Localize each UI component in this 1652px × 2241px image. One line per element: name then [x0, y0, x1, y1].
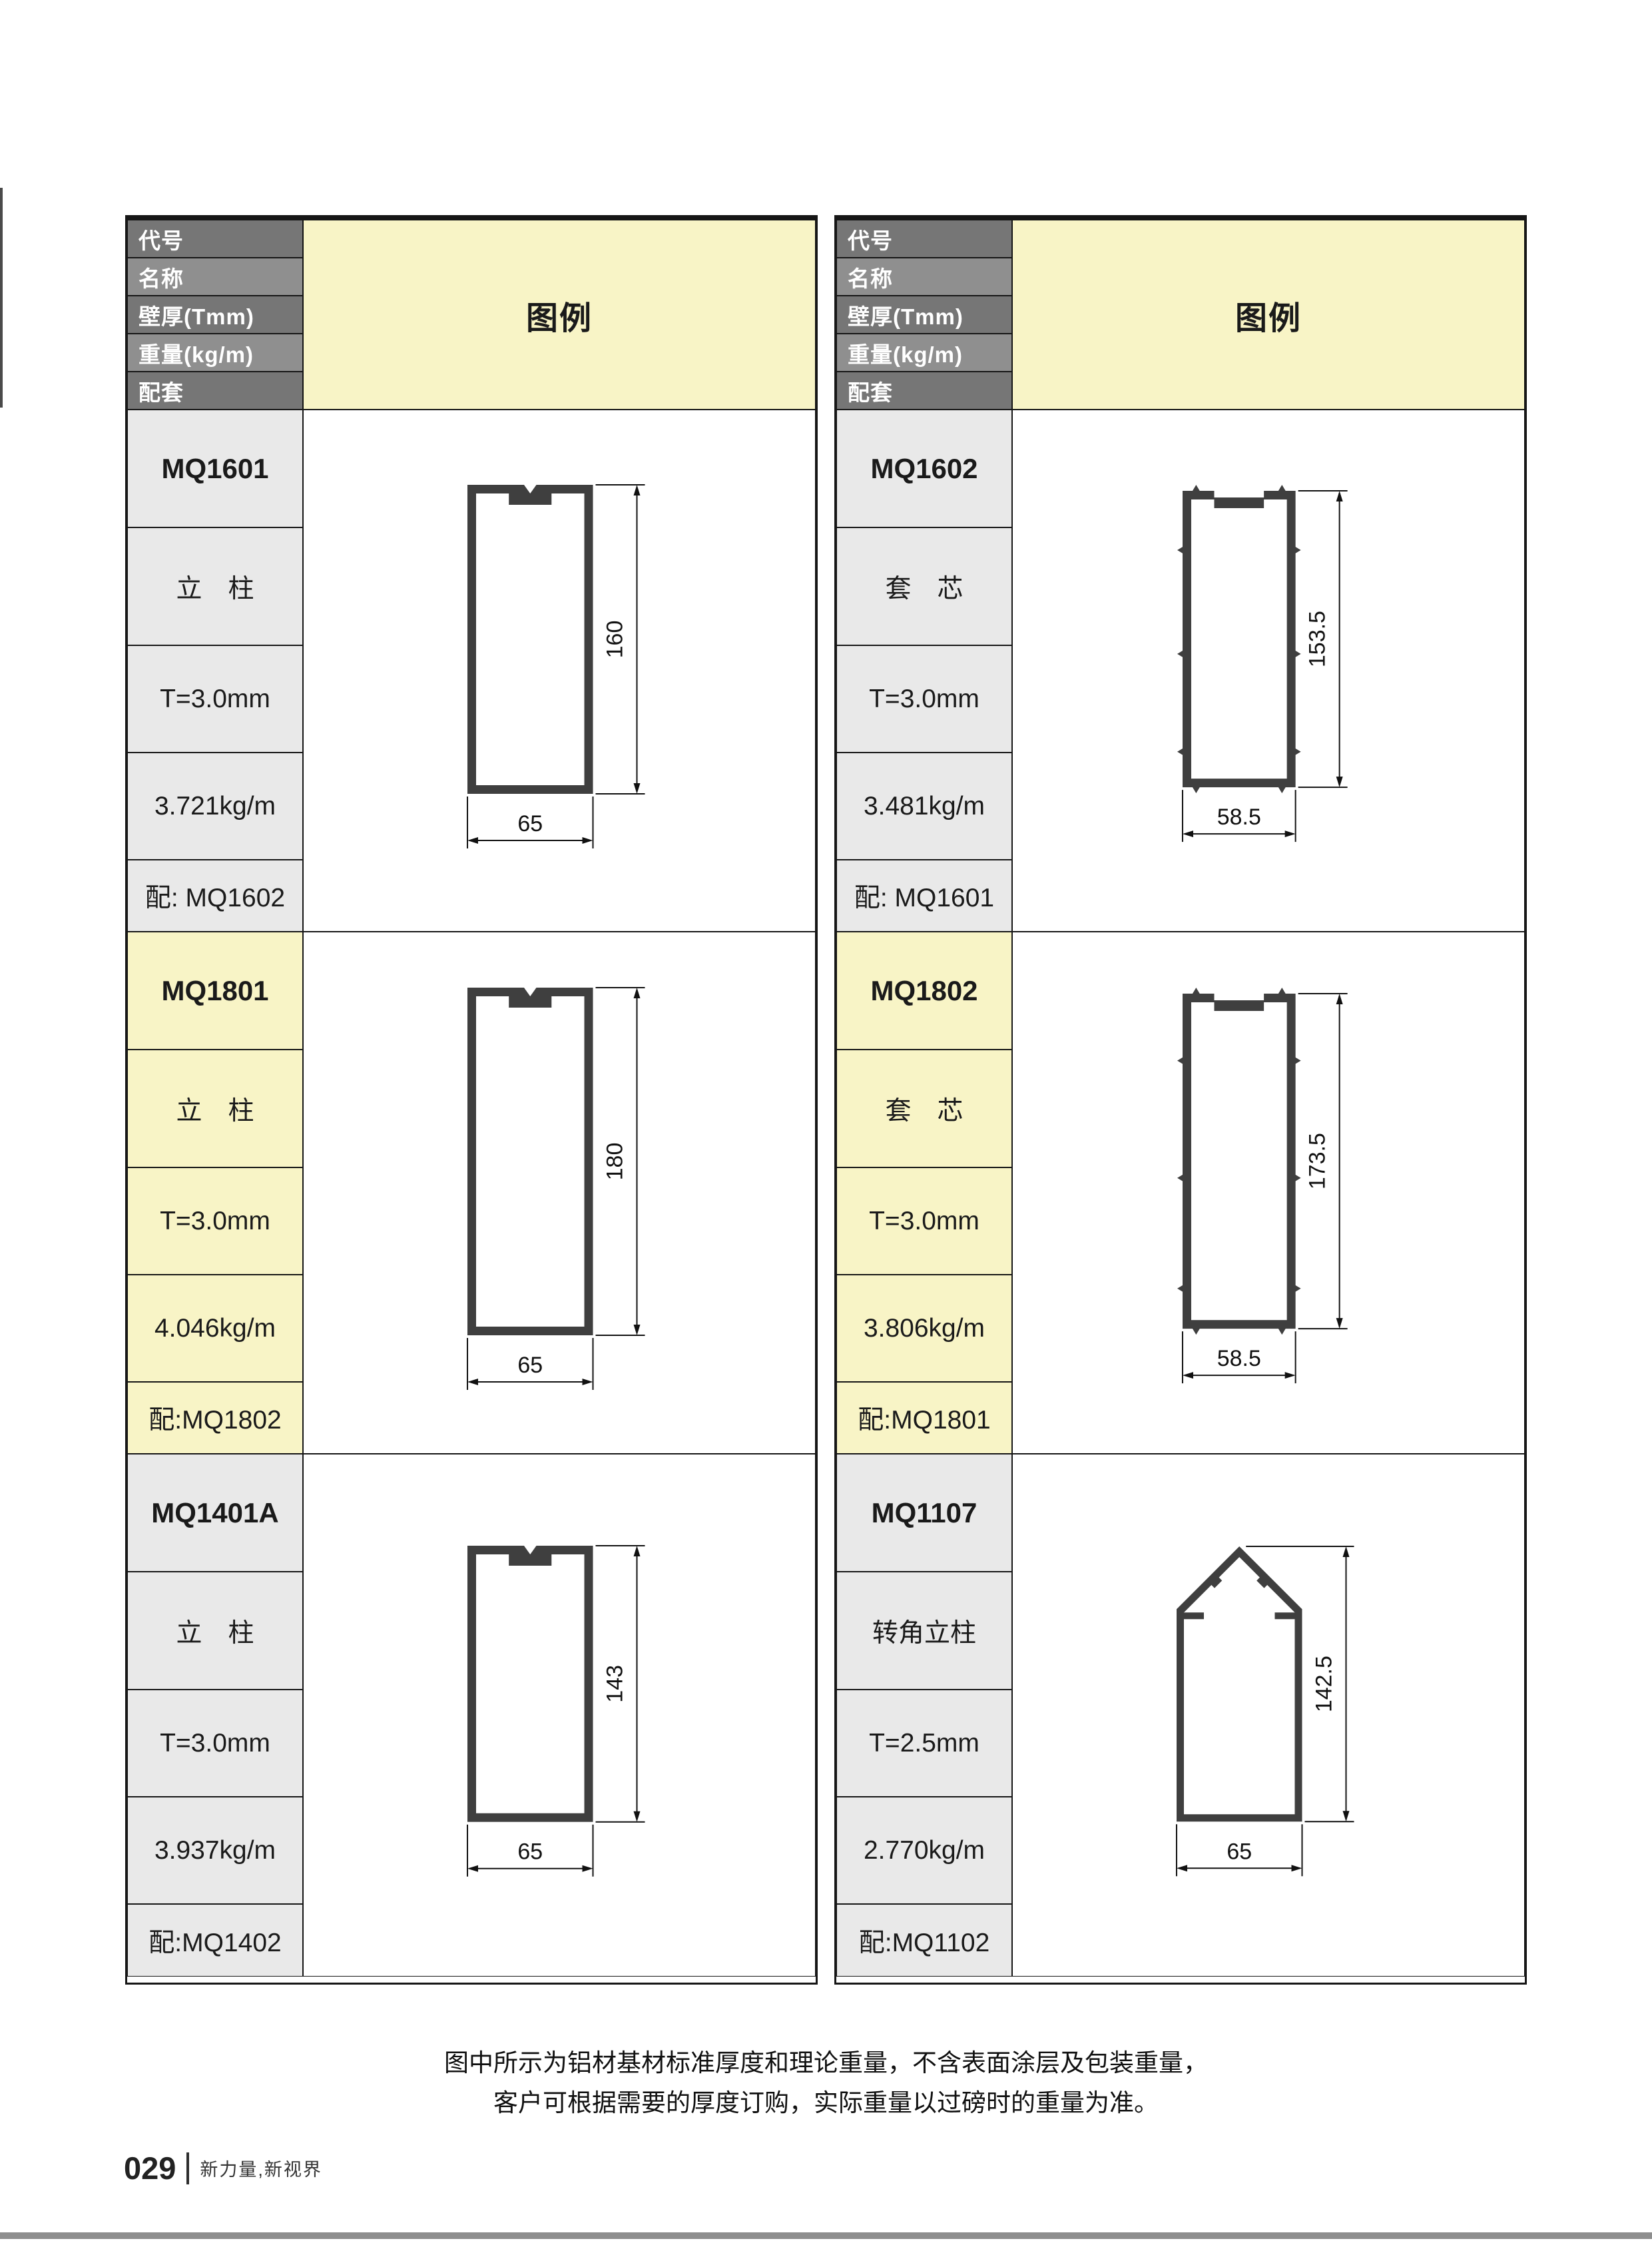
catalog-page: { "colors": { "section_yellow": "#f8f4c6…	[0, 0, 1652, 2241]
profile-thickness-cell: T=3.0mm	[127, 1690, 303, 1797]
footnote: 图中所示为铝材基材标准厚度和理论重量，不含表面涂层及包装重量， 客户可根据需要的…	[0, 2043, 1652, 2123]
footnote-line-2: 客户可根据需要的厚度订购，实际重量以过磅时的重量为准。	[0, 2083, 1652, 2123]
profile-match-cell: 配:MQ1102	[836, 1904, 1012, 1977]
bottom-page-bar	[0, 2232, 1652, 2239]
profile-diagram-mq1107: 142.565	[1012, 1454, 1525, 1977]
profile-code-cell: MQ1801	[127, 932, 303, 1050]
profile-thickness-cell: T=3.0mm	[836, 645, 1012, 753]
height-dimension-label: 143	[602, 1665, 627, 1703]
footer-divider	[186, 2152, 189, 2184]
header-weight: 重量(kg/m)	[127, 334, 303, 372]
height-dimension-label: 160	[602, 621, 627, 659]
profile-weight-cell: 3.721kg/m	[127, 753, 303, 860]
profile-thickness-cell: T=2.5mm	[836, 1690, 1012, 1797]
height-dimension-label: 173.5	[1305, 1133, 1330, 1189]
profile-match-cell: 配:MQ1402	[127, 1904, 303, 1977]
header-code: 代号	[127, 220, 303, 258]
profile-table-left: 代号 名称 壁厚(Tmm) 重量(kg/m) 配套 图例 MQ1601 立 柱 …	[125, 215, 818, 1985]
width-dimension-label: 65	[517, 811, 543, 836]
footer-slogan: 新力量,新视界	[200, 2155, 322, 2181]
left-trim-mark	[0, 188, 3, 408]
profile-diagram-mq1602: 153.558.5	[1012, 410, 1525, 932]
profile-weight-cell: 4.046kg/m	[127, 1275, 303, 1382]
page-footer: 029 新力量,新视界	[124, 2150, 322, 2186]
profile-table-right: 代号 名称 壁厚(Tmm) 重量(kg/m) 配套 图例 MQ1602 套 芯 …	[834, 215, 1527, 1985]
profile-name-cell: 套 芯	[836, 527, 1012, 645]
profile-code-cell: MQ1107	[836, 1454, 1012, 1572]
header-legend: 图例	[1012, 220, 1525, 410]
header-match: 配套	[836, 372, 1012, 410]
height-dimension-label: 142.5	[1311, 1656, 1336, 1712]
profile-match-cell: 配: MQ1602	[127, 860, 303, 932]
profile-thickness-cell: T=3.0mm	[836, 1167, 1012, 1275]
header-weight: 重量(kg/m)	[836, 334, 1012, 372]
header-thickness: 壁厚(Tmm)	[836, 296, 1012, 334]
header-thickness: 壁厚(Tmm)	[127, 296, 303, 334]
header-name: 名称	[127, 258, 303, 296]
profile-name-cell: 立 柱	[127, 527, 303, 645]
width-dimension-label: 65	[517, 1839, 543, 1865]
profile-diagram-mq1601: 16065	[303, 410, 816, 932]
profile-code-cell: MQ1601	[127, 410, 303, 527]
page-number: 029	[124, 2150, 176, 2186]
header-code: 代号	[836, 220, 1012, 258]
profile-match-cell: 配:MQ1802	[127, 1382, 303, 1454]
height-dimension-label: 180	[602, 1143, 627, 1181]
profile-name-cell: 转角立柱	[836, 1572, 1012, 1690]
profile-name-cell: 立 柱	[127, 1572, 303, 1690]
profile-weight-cell: 2.770kg/m	[836, 1797, 1012, 1904]
height-dimension-label: 153.5	[1305, 611, 1330, 667]
profile-weight-cell: 3.937kg/m	[127, 1797, 303, 1904]
cross-section-drawing: 142.565	[1153, 1530, 1385, 1900]
profile-name-cell: 套 芯	[836, 1050, 1012, 1167]
profile-name-cell: 立 柱	[127, 1050, 303, 1167]
width-dimension-label: 58.5	[1217, 1347, 1261, 1372]
header-match: 配套	[127, 372, 303, 410]
cross-section-drawing: 173.558.5	[1159, 978, 1378, 1407]
profile-diagram-mq1802: 173.558.5	[1012, 932, 1525, 1454]
profile-diagram-mq1801: 18065	[303, 932, 816, 1454]
cross-section-drawing: 153.558.5	[1159, 475, 1378, 866]
header-name: 名称	[836, 258, 1012, 296]
profile-code-cell: MQ1802	[836, 932, 1012, 1050]
width-dimension-label: 65	[517, 1353, 543, 1378]
cross-section-drawing: 18065	[443, 972, 676, 1414]
profile-diagram-mq1401a: 14365	[303, 1454, 816, 1977]
profile-weight-cell: 3.481kg/m	[836, 753, 1012, 860]
footnote-line-1: 图中所示为铝材基材标准厚度和理论重量，不含表面涂层及包装重量，	[0, 2043, 1652, 2083]
cross-section-drawing: 16065	[443, 469, 676, 872]
profile-match-cell: 配: MQ1601	[836, 860, 1012, 932]
profile-match-cell: 配:MQ1801	[836, 1382, 1012, 1454]
profile-code-cell: MQ1602	[836, 410, 1012, 527]
header-legend: 图例	[303, 220, 816, 410]
profile-thickness-cell: T=3.0mm	[127, 1167, 303, 1275]
width-dimension-label: 65	[1227, 1839, 1252, 1864]
profile-weight-cell: 3.806kg/m	[836, 1275, 1012, 1382]
width-dimension-label: 58.5	[1217, 805, 1261, 830]
cross-section-drawing: 14365	[443, 1530, 676, 1901]
profile-thickness-cell: T=3.0mm	[127, 645, 303, 753]
profile-code-cell: MQ1401A	[127, 1454, 303, 1572]
